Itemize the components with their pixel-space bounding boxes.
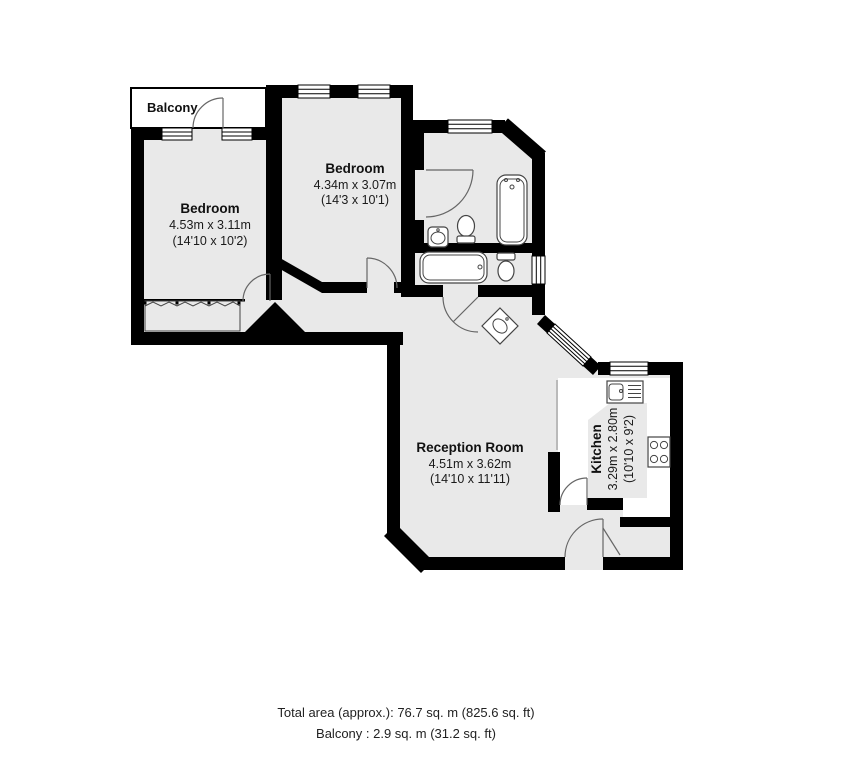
bathtub-horizontal-icon bbox=[420, 252, 487, 283]
bedroom1-label: Bedroom 4.53m x 3.11m (14'10 x 10'2) bbox=[169, 201, 251, 248]
kitchen-imperial: (10'10 x 9'2) bbox=[622, 415, 636, 483]
stove-icon bbox=[648, 437, 670, 467]
floorplan-page: Balcony Bedroom 4.53m x 3.11m (14'10 x 1… bbox=[0, 0, 848, 764]
window-bedroom2-left bbox=[298, 85, 330, 98]
bedroom1-metric: 4.53m x 3.11m bbox=[169, 218, 251, 232]
reception-imperial: (14'10 x 11'11) bbox=[430, 472, 510, 486]
window-bathroom-right bbox=[532, 256, 545, 284]
floorplan-drawing: Balcony Bedroom 4.53m x 3.11m (14'10 x 1… bbox=[0, 0, 848, 764]
balcony-label: Balcony bbox=[147, 100, 198, 115]
total-area-text: Total area (approx.): 76.7 sq. m (825.6 … bbox=[277, 705, 534, 720]
kitchen-sink-icon bbox=[607, 381, 643, 403]
toilet-icon bbox=[457, 216, 475, 244]
reception-metric: 4.51m x 3.62m bbox=[429, 457, 512, 471]
kitchen-name: Kitchen bbox=[589, 424, 604, 474]
bathtub-vertical-icon bbox=[497, 175, 527, 245]
bedroom2-metric: 4.34m x 3.07m bbox=[314, 178, 397, 192]
balcony-area-text: Balcony : 2.9 sq. m (31.2 sq. ft) bbox=[316, 726, 496, 741]
bedroom2-label: Bedroom 4.34m x 3.07m (14'3 x 10'1) bbox=[314, 161, 397, 207]
window-bathroom-top bbox=[448, 120, 492, 133]
reception-label: Reception Room 4.51m x 3.62m (14'10 x 11… bbox=[416, 440, 523, 486]
reception-name: Reception Room bbox=[416, 440, 523, 455]
bedroom2-name: Bedroom bbox=[325, 161, 384, 176]
bedroom1-name: Bedroom bbox=[180, 201, 239, 216]
window-bedroom2-right bbox=[358, 85, 390, 98]
window-bedroom1-left bbox=[162, 128, 192, 140]
kitchen-metric: 3.29m x 2.80m bbox=[606, 408, 620, 491]
bedroom1-imperial: (14'10 x 10'2) bbox=[173, 234, 248, 248]
window-bedroom1-right bbox=[222, 128, 252, 140]
bedroom2-imperial: (14'3 x 10'1) bbox=[321, 193, 389, 207]
toilet2-icon bbox=[497, 253, 515, 281]
basin-icon bbox=[428, 227, 448, 247]
window-kitchen-top bbox=[610, 362, 648, 375]
footer: Total area (approx.): 76.7 sq. m (825.6 … bbox=[277, 705, 534, 741]
